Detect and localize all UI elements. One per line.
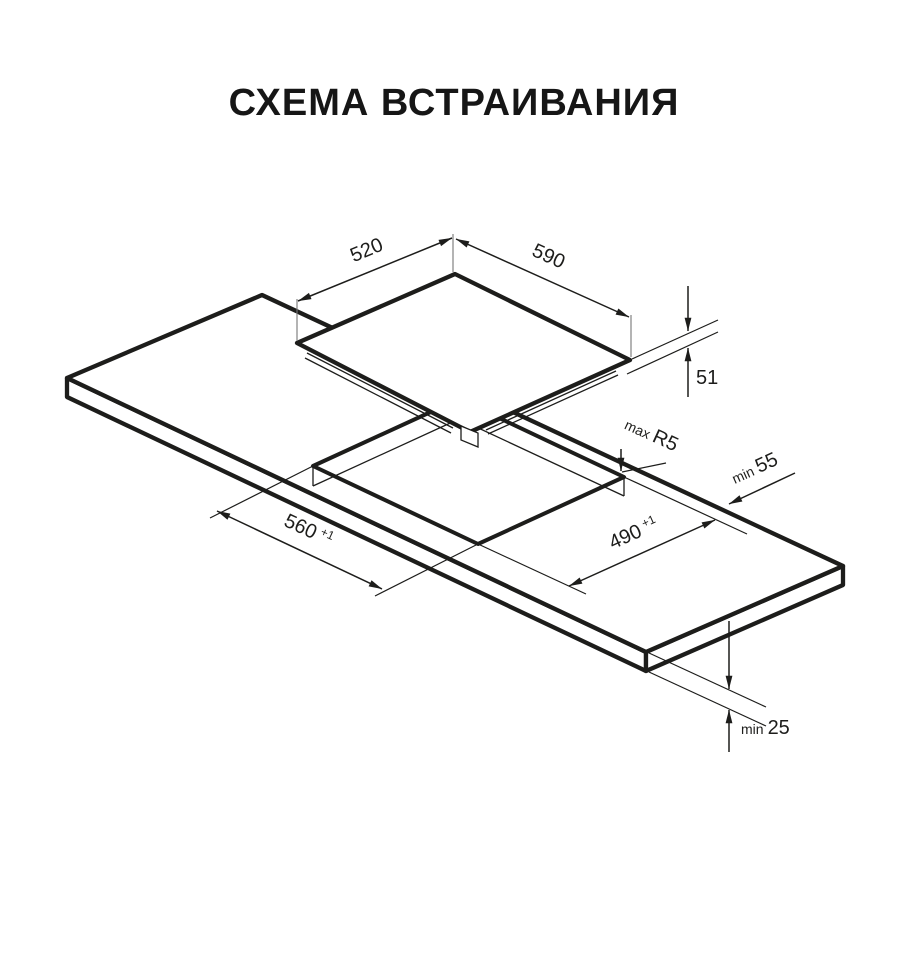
dim-hob-height-51: 51 xyxy=(627,286,718,397)
installation-diagram-page: СХЕМА ВСТРАИВАНИЯ xyxy=(0,0,908,960)
diagram-canvas: 560+1 490+1 min55 maxR5 xyxy=(0,0,908,960)
dim-corner-radius: maxR5 xyxy=(621,413,682,472)
dim-hob-height-label: 51 xyxy=(696,367,718,389)
dim-hob-width-label: 590 xyxy=(529,240,568,274)
page-title: СХЕМА ВСТРАИВАНИЯ xyxy=(0,82,908,125)
dim-bottom-clearance-label: min25 xyxy=(741,717,790,739)
dim-side-clearance: min55 xyxy=(728,448,795,504)
dim-hob-depth-label: 520 xyxy=(347,234,386,267)
dim-corner-radius-label: maxR5 xyxy=(621,413,681,456)
